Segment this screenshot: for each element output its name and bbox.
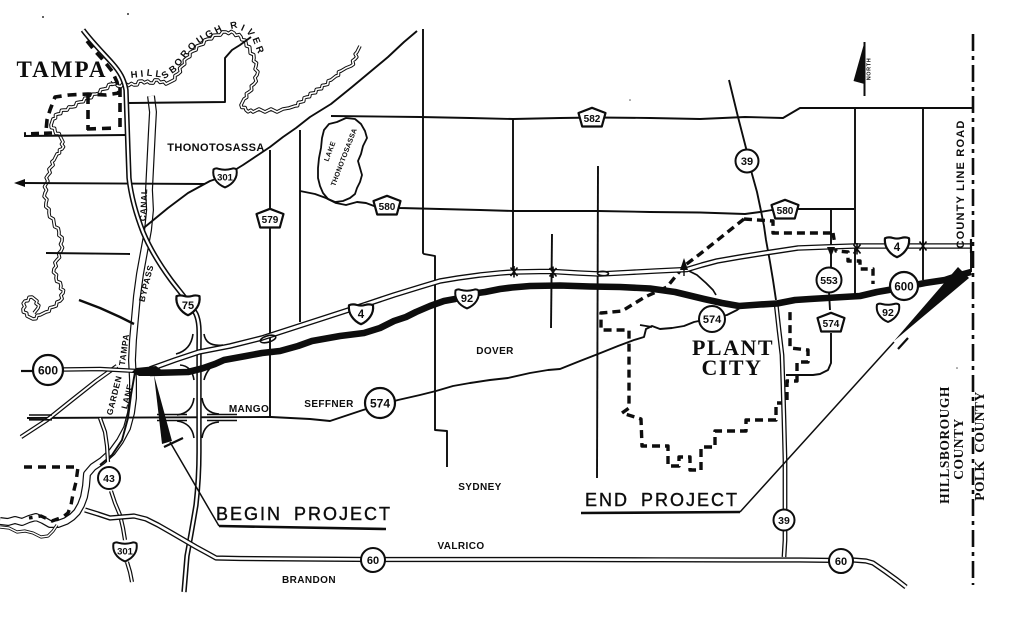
svg-text:CITY: CITY xyxy=(701,355,762,380)
svg-text:39: 39 xyxy=(778,515,790,527)
svg-text:END PROJECT: END PROJECT xyxy=(585,490,739,510)
svg-text:DOVER: DOVER xyxy=(476,346,514,357)
svg-text:92: 92 xyxy=(882,307,894,319)
svg-text:301: 301 xyxy=(217,173,234,184)
svg-text:92: 92 xyxy=(461,293,473,305)
svg-text:600: 600 xyxy=(38,364,58,378)
svg-text:BRANDON: BRANDON xyxy=(282,575,336,586)
svg-text:301: 301 xyxy=(117,547,134,558)
svg-text:NORTH: NORTH xyxy=(867,58,873,81)
svg-text:60: 60 xyxy=(367,555,379,567)
svg-text:CANAL: CANAL xyxy=(138,188,150,221)
svg-text:574: 574 xyxy=(370,397,390,411)
svg-text:COUNTY: COUNTY xyxy=(951,418,966,480)
svg-text:43: 43 xyxy=(103,473,115,485)
svg-text:POLK COUNTY: POLK COUNTY xyxy=(972,391,987,501)
svg-text:39: 39 xyxy=(741,156,753,168)
svg-text:553: 553 xyxy=(820,275,838,287)
svg-text:574: 574 xyxy=(823,319,840,330)
svg-text:582: 582 xyxy=(584,114,601,125)
svg-text:COUNTY LINE ROAD: COUNTY LINE ROAD xyxy=(955,119,967,248)
svg-text:75: 75 xyxy=(182,300,194,312)
svg-text:HILLSBOROUGH: HILLSBOROUGH xyxy=(937,386,952,504)
svg-text:60: 60 xyxy=(835,556,847,568)
svg-text:574: 574 xyxy=(703,314,722,326)
svg-text:580: 580 xyxy=(379,202,396,213)
svg-text:SYDNEY: SYDNEY xyxy=(458,482,502,493)
svg-text:MANGO: MANGO xyxy=(229,404,269,415)
svg-text:VALRICO: VALRICO xyxy=(437,541,484,552)
svg-text:600: 600 xyxy=(894,282,913,294)
svg-text:579: 579 xyxy=(262,215,279,226)
svg-text:4: 4 xyxy=(358,309,365,321)
svg-text:TAMPA: TAMPA xyxy=(17,57,108,82)
svg-text:SEFFNER: SEFFNER xyxy=(304,399,354,410)
svg-text:THONOTOSASSA: THONOTOSASSA xyxy=(167,142,265,154)
svg-text:BEGIN PROJECT: BEGIN PROJECT xyxy=(216,504,392,524)
svg-text:4: 4 xyxy=(894,242,901,254)
svg-text:580: 580 xyxy=(777,206,794,217)
